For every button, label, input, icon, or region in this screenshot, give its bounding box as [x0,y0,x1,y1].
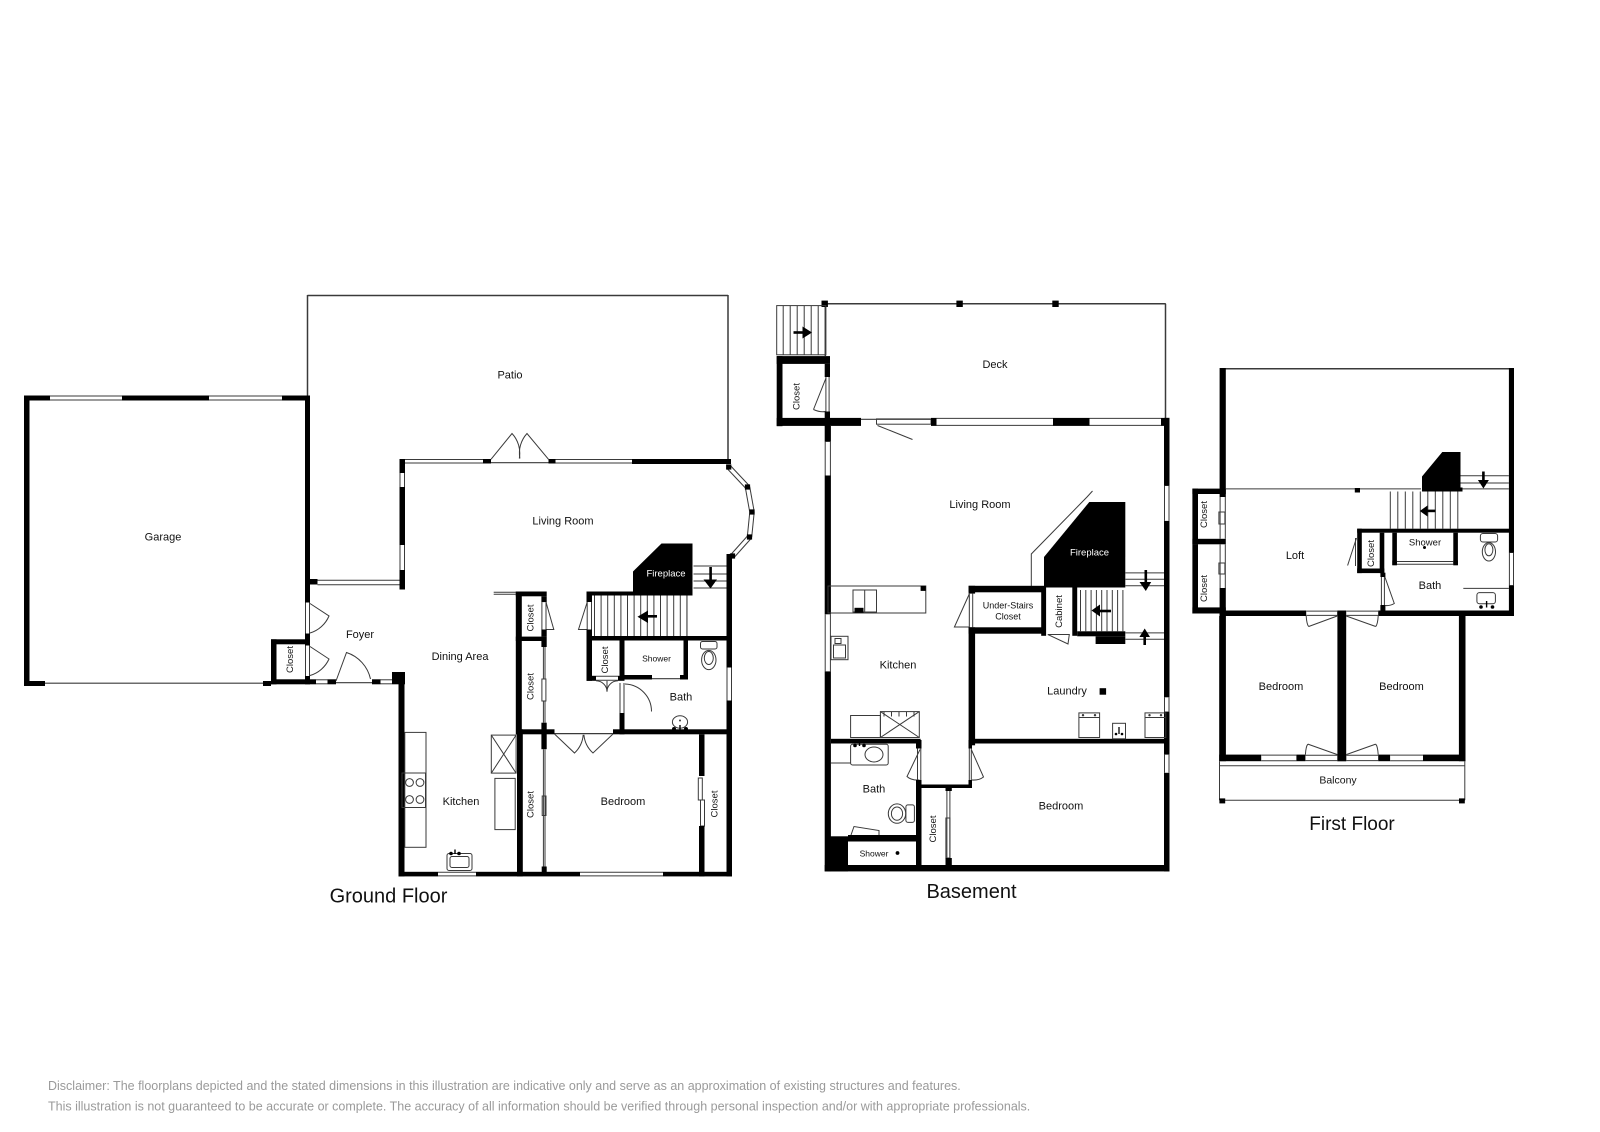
svg-text:Bath: Bath [1419,580,1442,592]
svg-text:Closet: Closet [710,790,721,817]
svg-text:Closet: Closet [526,604,537,631]
svg-text:Bath: Bath [670,692,693,704]
svg-text:Bedroom: Bedroom [1259,681,1304,693]
svg-text:Bedroom: Bedroom [601,796,646,808]
svg-text:Living Room: Living Room [949,499,1010,511]
svg-text:Closet: Closet [1199,575,1210,602]
svg-text:Balcony: Balcony [1319,775,1357,787]
svg-text:Closet: Closet [792,383,803,410]
svg-text:Laundry: Laundry [1047,686,1087,698]
svg-text:Fireplace: Fireplace [1070,548,1109,559]
svg-text:Fireplace: Fireplace [646,569,685,580]
svg-text:Loft: Loft [1286,550,1304,562]
svg-text:Deck: Deck [982,359,1008,371]
svg-text:Bedroom: Bedroom [1039,801,1084,813]
svg-text:Ground Floor: Ground Floor [330,886,448,908]
svg-text:Dining Area: Dining Area [432,651,490,663]
svg-text:Closet: Closet [995,612,1021,622]
svg-text:Disclaimer: The floorplans dep: Disclaimer: The floorplans depicted and … [48,1079,961,1093]
svg-text:Kitchen: Kitchen [443,796,480,808]
svg-text:Garage: Garage [145,532,182,544]
svg-text:Living Room: Living Room [532,516,593,528]
svg-text:Bedroom: Bedroom [1379,681,1424,693]
svg-text:Closet: Closet [928,815,939,842]
svg-text:Under-Stairs: Under-Stairs [983,601,1034,611]
svg-text:Patio: Patio [497,370,522,382]
svg-text:Kitchen: Kitchen [880,660,917,672]
svg-text:This illustration is not guara: This illustration is not guaranteed to b… [48,1100,1030,1114]
svg-text:Closet: Closet [285,646,296,673]
svg-text:First Floor: First Floor [1309,814,1395,835]
svg-text:Shower: Shower [642,654,671,664]
svg-text:Closet: Closet [526,673,537,700]
svg-text:Basement: Basement [926,881,1016,903]
svg-text:Foyer: Foyer [346,629,374,641]
svg-text:Shower: Shower [860,849,889,859]
svg-text:Closet: Closet [1199,501,1210,528]
svg-text:Closet: Closet [526,791,537,818]
svg-text:Bath: Bath [863,784,886,796]
svg-text:Closet: Closet [1366,540,1377,567]
svg-text:Cabinet: Cabinet [1054,595,1065,628]
svg-text:Closet: Closet [600,646,611,673]
